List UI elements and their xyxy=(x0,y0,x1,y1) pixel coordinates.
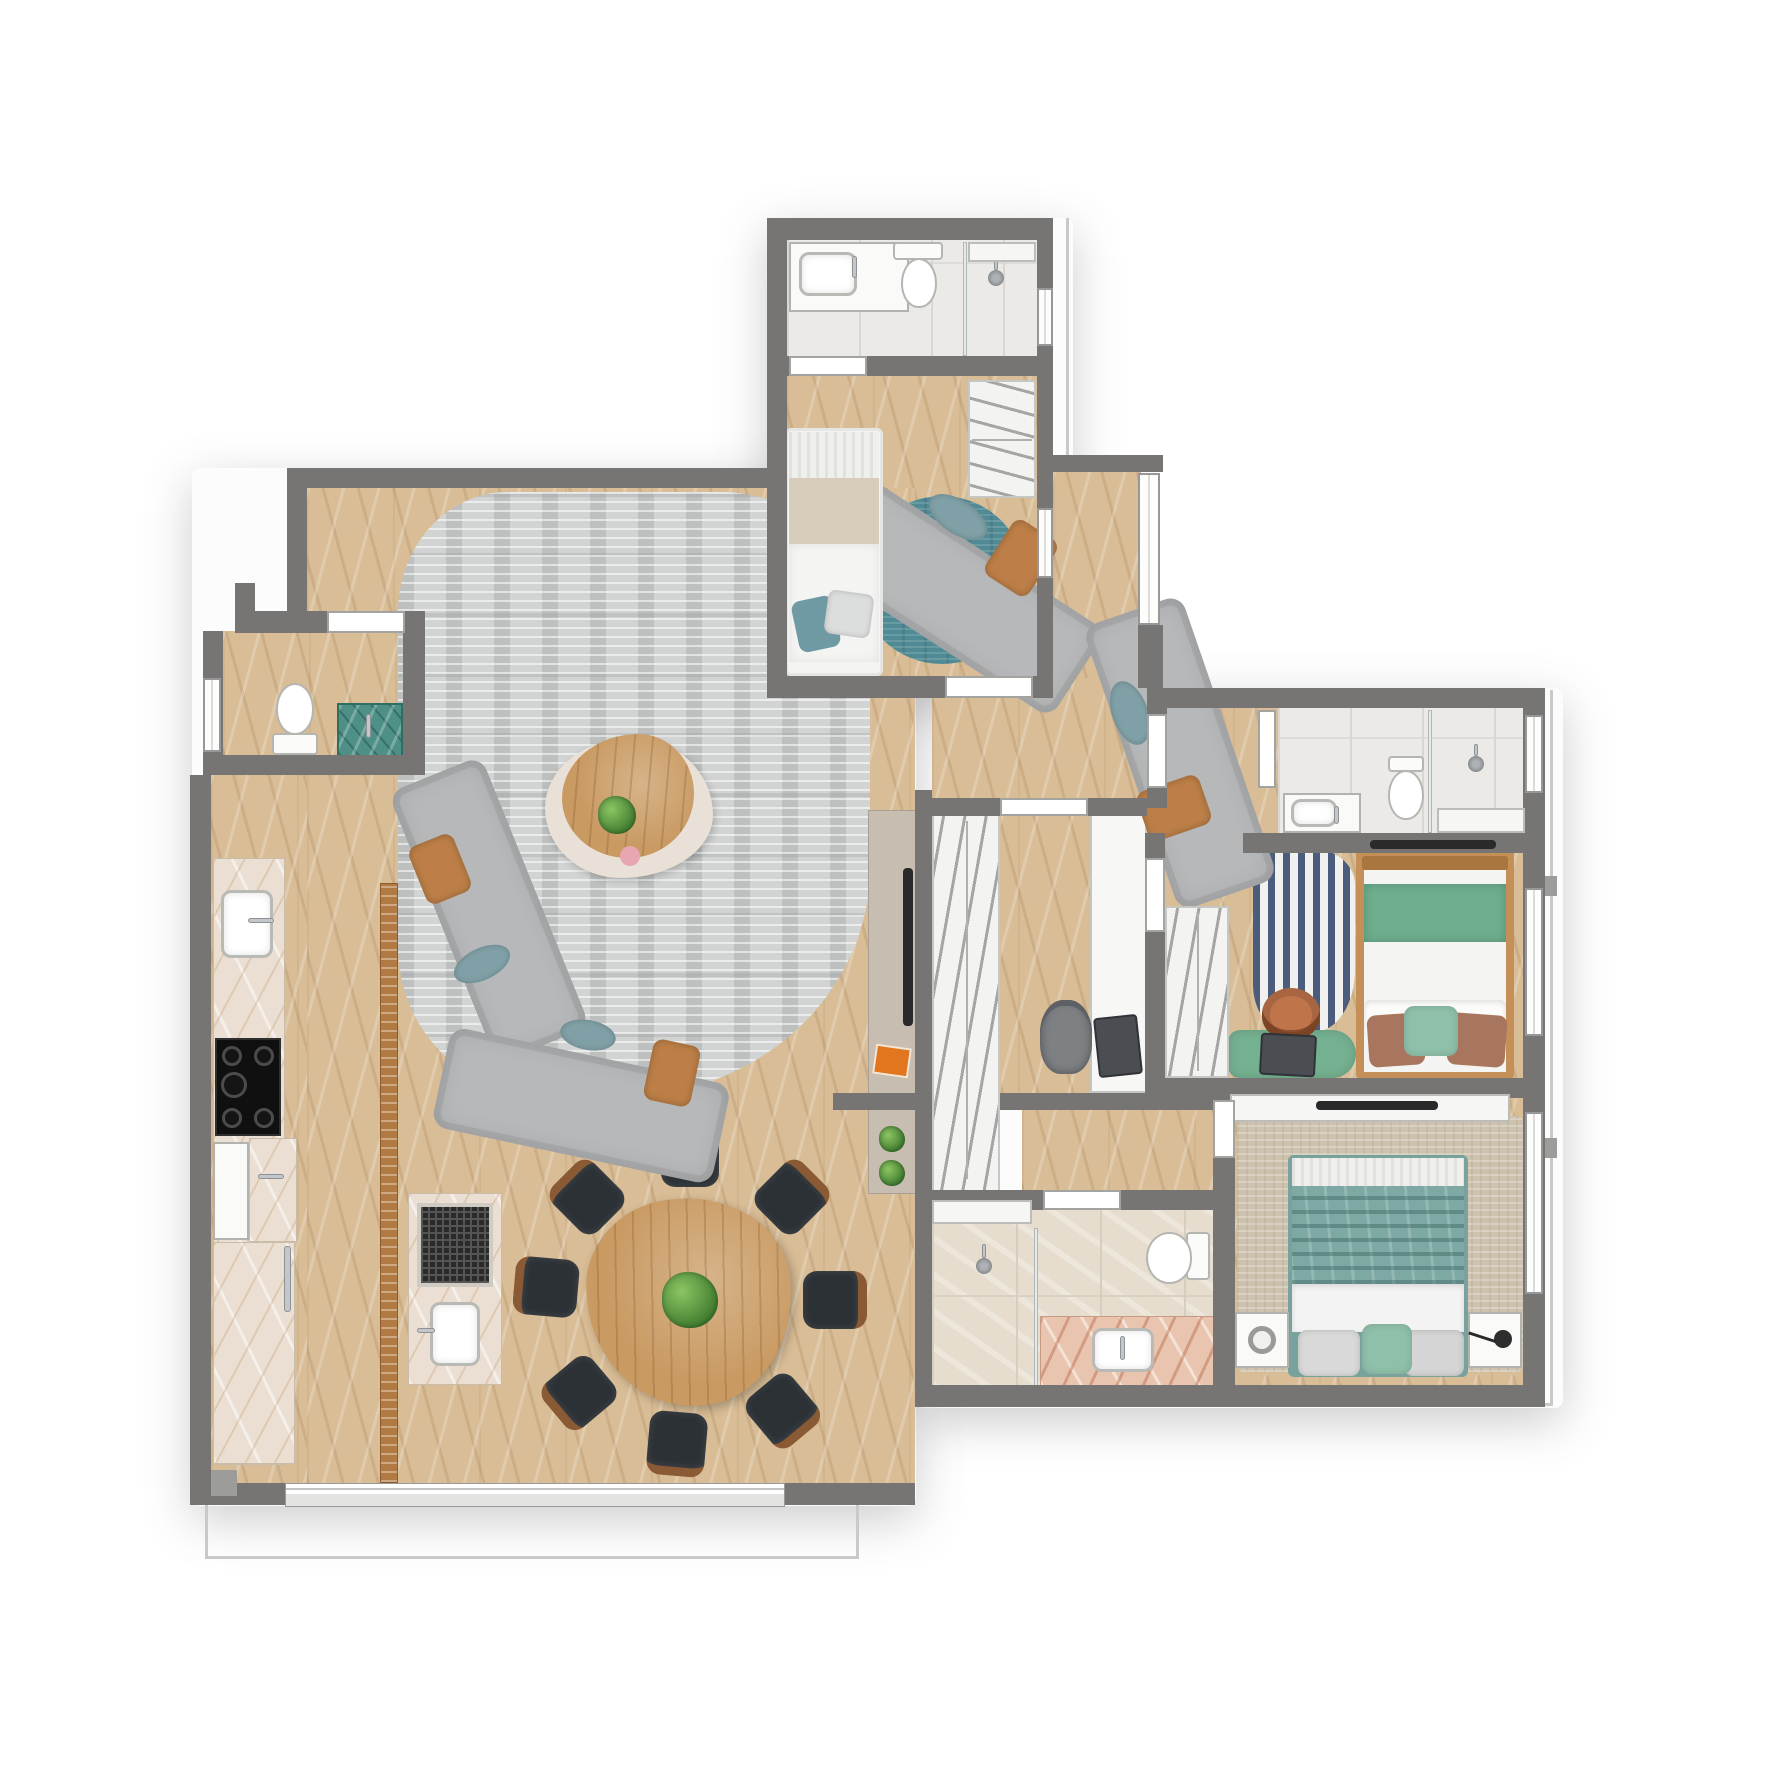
bath-top-faucet xyxy=(852,256,857,278)
door-bathroom-top xyxy=(789,356,867,376)
green-bedroom-wardrobe xyxy=(1165,906,1229,1078)
wall-segment xyxy=(287,468,767,488)
master-toilet-bowl xyxy=(1146,1232,1192,1284)
wall-segment xyxy=(190,775,211,1505)
wall-segment xyxy=(1037,218,1053,292)
burner xyxy=(222,1108,242,1128)
wall-segment xyxy=(190,1483,285,1505)
green-bed-pillow-teal-dot xyxy=(1404,1006,1458,1056)
door-powder-room xyxy=(327,611,405,633)
foyer-window xyxy=(1138,473,1160,625)
sideboard-plant xyxy=(879,1160,905,1186)
wall-segment xyxy=(785,1483,915,1505)
kitchen-counter-faucet xyxy=(258,1174,284,1179)
suite-bath-basin xyxy=(1291,799,1337,827)
dining-chair xyxy=(803,1271,867,1329)
wall-segment xyxy=(1053,455,1163,472)
bath-top-shower-head xyxy=(988,270,1004,286)
door-small-bedroom xyxy=(945,676,1033,698)
wall-segment xyxy=(403,611,425,775)
wall-segment xyxy=(287,583,307,613)
hall-closet xyxy=(932,808,1000,1192)
slab-line xyxy=(205,1556,859,1559)
master-bed-top xyxy=(1292,1158,1464,1188)
dining-table-plant xyxy=(662,1272,718,1328)
suite-shower-stem xyxy=(1474,744,1478,756)
burner xyxy=(221,1072,247,1098)
burner xyxy=(222,1046,242,1066)
wall-segment xyxy=(203,755,425,775)
window xyxy=(1037,288,1053,346)
suite-shower-head xyxy=(1468,756,1484,772)
master-shower-stem xyxy=(982,1244,986,1258)
master-shower-glass xyxy=(1034,1228,1038,1387)
orange-book xyxy=(872,1044,912,1079)
burner xyxy=(254,1108,274,1128)
burner xyxy=(254,1046,274,1066)
green-bed-headboard xyxy=(1362,856,1508,870)
master-bath-shelf xyxy=(932,1200,1032,1224)
slab-line xyxy=(1550,690,1553,1406)
wall-segment xyxy=(767,218,787,698)
door-master-bathroom xyxy=(1043,1190,1121,1210)
master-bath-faucet xyxy=(1120,1336,1125,1360)
suite-toilet-bowl xyxy=(1388,770,1424,820)
master-bed-blanket xyxy=(1292,1186,1464,1284)
window xyxy=(203,678,221,752)
coffee-table-plant xyxy=(598,796,636,834)
door-master-bedroom xyxy=(1213,1100,1235,1158)
suite-shower-glass xyxy=(1428,710,1432,833)
window xyxy=(1525,1112,1543,1294)
island-faucet xyxy=(417,1328,435,1333)
window xyxy=(1037,508,1053,578)
master-tv xyxy=(1316,1101,1438,1110)
tall-cabinet xyxy=(213,1242,295,1464)
kitchen-counter-jog xyxy=(249,1138,297,1242)
closet-rail xyxy=(966,821,968,1178)
wall-segment xyxy=(1000,1093,1233,1110)
suite-bath-niche xyxy=(1437,808,1525,833)
slab-line xyxy=(1066,218,1069,470)
single-bed-pillow-end xyxy=(789,432,879,478)
dining-chair xyxy=(512,1255,581,1318)
wall-segment xyxy=(833,1093,915,1110)
suite-bath-faucet xyxy=(1334,806,1339,824)
island-grill xyxy=(417,1203,493,1287)
window xyxy=(1525,715,1543,793)
column xyxy=(211,1470,237,1496)
balcony-sliding-door xyxy=(285,1483,785,1507)
door-green-bedroom xyxy=(1145,858,1165,932)
wood-slat-divider xyxy=(380,883,398,1483)
single-bed-throw xyxy=(789,478,879,544)
floor-corridor xyxy=(1022,1098,1215,1192)
closet-rail xyxy=(1197,913,1199,1071)
island-sink xyxy=(430,1302,480,1366)
door-suite-entry xyxy=(1147,714,1167,788)
wall-segment xyxy=(1523,688,1545,1407)
green-bed-blanket xyxy=(1364,884,1506,942)
master-bed-pillow-teal-dot xyxy=(1362,1324,1412,1374)
wall-segment xyxy=(1213,1155,1235,1407)
wall-segment xyxy=(767,218,1053,240)
dining-chair xyxy=(645,1410,708,1479)
door-suite-bathroom xyxy=(1258,710,1276,788)
master-bed-pillow xyxy=(1404,1330,1464,1376)
facade-tab xyxy=(1545,1138,1557,1158)
wall-segment xyxy=(1138,625,1163,688)
office-laptop xyxy=(1093,1014,1143,1078)
window xyxy=(1525,888,1543,1036)
powder-faucet xyxy=(366,714,371,738)
single-bed-pillow-dotted xyxy=(823,589,875,639)
cabinet-handle xyxy=(284,1246,291,1312)
small-bedroom-wardrobe xyxy=(968,380,1036,498)
floor-plan-canvas xyxy=(0,0,1771,1771)
bath-top-shower-glass xyxy=(963,242,967,356)
coffee-table-dish xyxy=(620,846,640,866)
arc-lamp-head xyxy=(1494,1330,1512,1348)
wall-segment xyxy=(287,468,307,588)
master-bed-pillow xyxy=(1298,1330,1360,1376)
kitchen-sink xyxy=(221,890,273,958)
oven-front xyxy=(213,1142,249,1240)
living-tv xyxy=(903,868,913,1026)
bath-top-toilet-bowl xyxy=(901,258,937,308)
door-office xyxy=(1000,798,1088,816)
master-shower-head xyxy=(976,1258,992,1274)
kitchen-faucet xyxy=(248,918,274,923)
office-chair xyxy=(1040,1000,1092,1074)
bath-top-niche xyxy=(968,242,1036,262)
powder-toilet-tank xyxy=(272,733,318,755)
sideboard-plant xyxy=(879,1126,905,1152)
green-desk-laptop xyxy=(1259,1033,1317,1078)
bath-top-basin xyxy=(799,252,857,296)
facade-tab xyxy=(1545,876,1557,896)
closet-rail xyxy=(972,439,1032,441)
round-lamp xyxy=(1248,1326,1276,1354)
wall-segment xyxy=(1147,688,1545,708)
slab-line xyxy=(205,1500,208,1558)
cooktop xyxy=(215,1038,281,1136)
green-bedroom-tv xyxy=(1370,840,1496,849)
wall-segment xyxy=(915,790,932,1407)
powder-toilet-bowl xyxy=(276,683,314,735)
